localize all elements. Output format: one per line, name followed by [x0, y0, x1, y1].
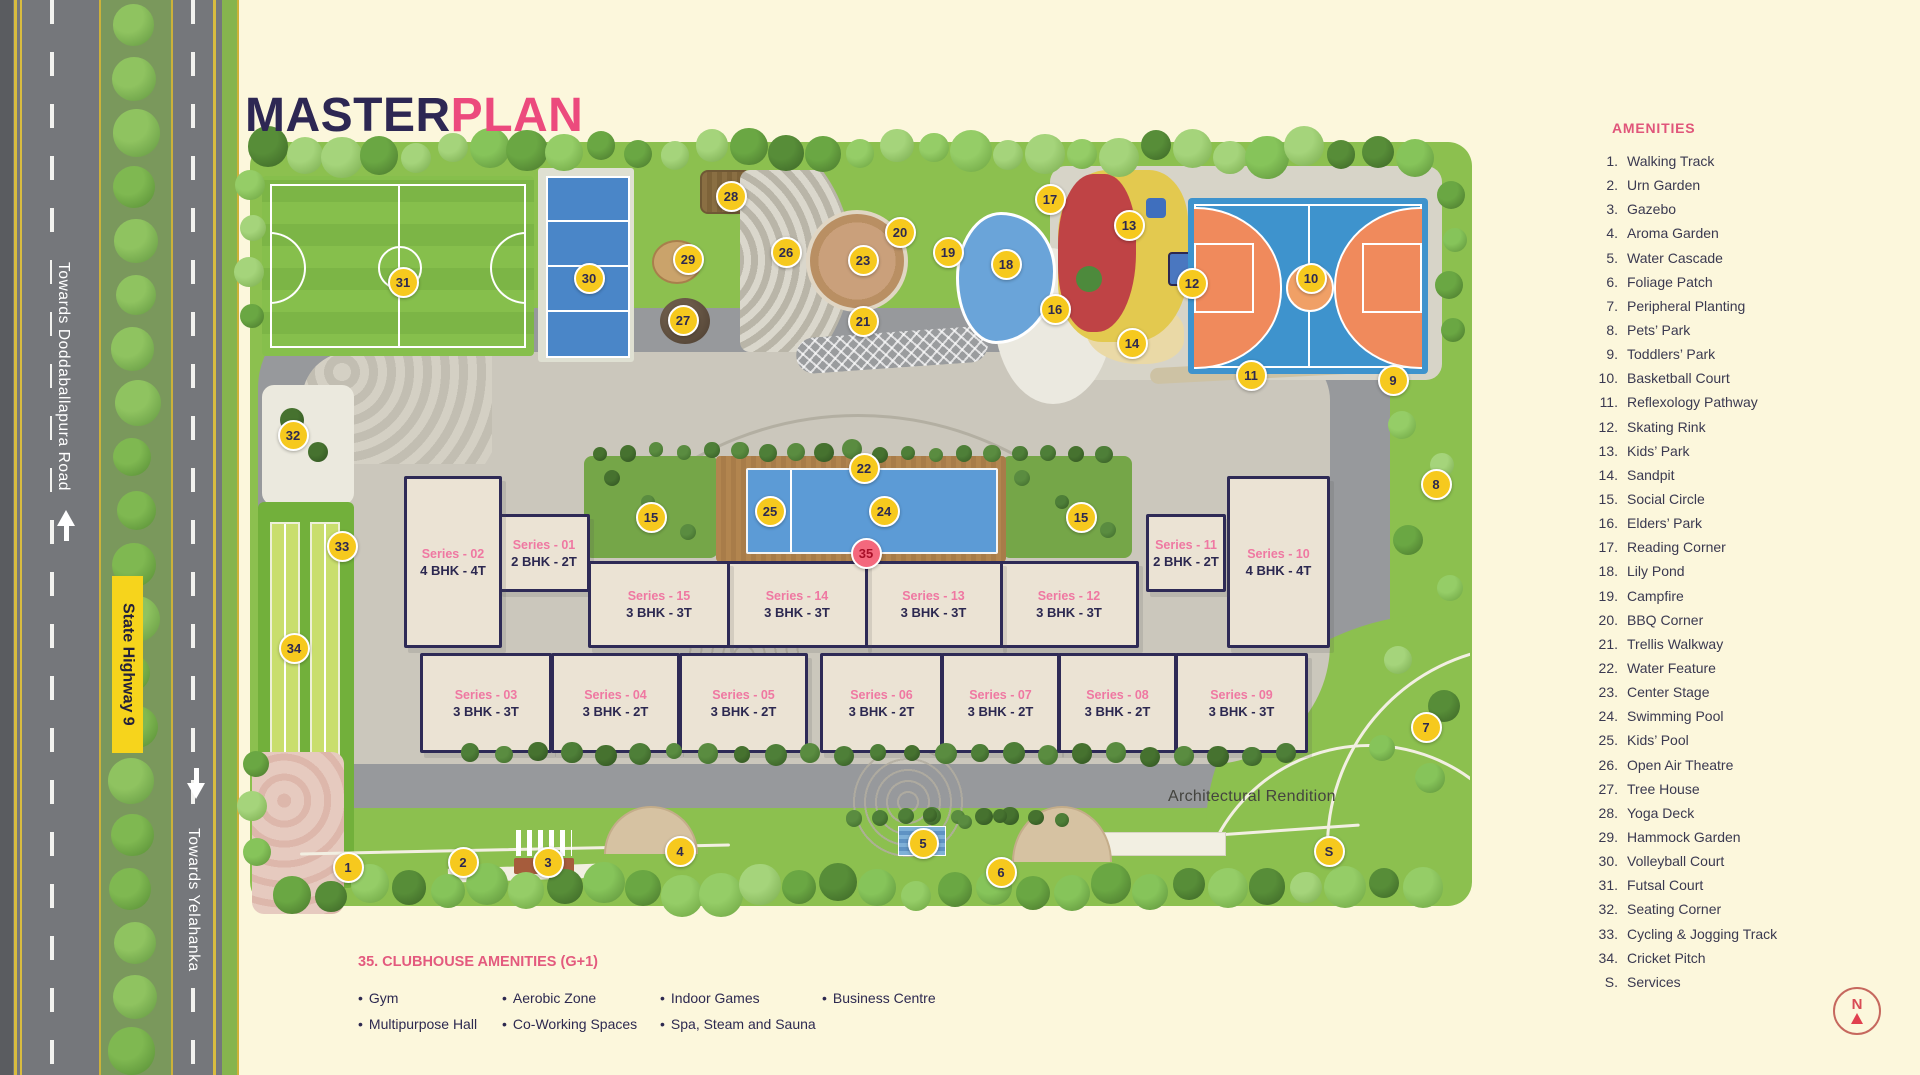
tree-icon	[1038, 745, 1058, 765]
tree-icon	[1132, 874, 1168, 910]
map-marker-34: 34	[279, 633, 310, 664]
map-marker-18: 18	[991, 249, 1022, 280]
tree-icon	[730, 128, 767, 165]
tree-icon	[950, 130, 992, 172]
legend-item: 34.Cricket Pitch	[1588, 946, 1908, 970]
legend-item: 7.Peripheral Planting	[1588, 294, 1908, 318]
tree-icon	[1242, 747, 1262, 767]
tree-icon	[112, 57, 156, 101]
clubhouse-column: •Business Centre	[822, 986, 936, 1012]
residential-tower: Series - 153 BHK - 3T	[588, 561, 730, 648]
tree-icon	[117, 491, 156, 530]
tree-icon	[113, 109, 160, 156]
clubhouse-item: •Spa, Steam and Sauna	[660, 1012, 816, 1038]
tree-icon	[1384, 646, 1412, 674]
residential-tower: Series - 043 BHK - 2T	[551, 653, 680, 753]
legend-item: 19.Campfire	[1588, 584, 1908, 608]
tree-icon	[1435, 271, 1463, 299]
tree-icon	[1140, 747, 1160, 767]
map-marker-14: 14	[1117, 328, 1148, 359]
tree-icon	[880, 129, 913, 162]
tree-icon	[1415, 763, 1445, 793]
tree-icon	[958, 815, 972, 829]
tree-icon	[923, 808, 937, 822]
tree-icon	[1016, 876, 1050, 910]
residential-tower: Series - 133 BHK - 3T	[864, 561, 1003, 648]
tree-icon	[677, 445, 692, 460]
north-letter: N	[1852, 998, 1863, 1012]
tree-icon	[1012, 446, 1027, 461]
tree-icon	[243, 751, 269, 777]
tree-icon	[237, 791, 267, 821]
tree-icon	[625, 870, 660, 905]
tree-icon	[495, 746, 512, 763]
map-marker-15: 15	[1066, 502, 1097, 533]
map-marker-8: 8	[1421, 469, 1452, 500]
clubhouse-item: •Business Centre	[822, 986, 936, 1012]
legend-item: 21.Trellis Walkway	[1588, 632, 1908, 656]
tree-icon	[1284, 126, 1324, 166]
tree-icon	[629, 743, 651, 765]
map-marker-27: 27	[668, 305, 699, 336]
tree-icon	[1174, 746, 1194, 766]
tree-icon	[1245, 136, 1289, 180]
tree-icon	[315, 881, 347, 913]
map-marker-32: 32	[278, 420, 309, 451]
tree-icon	[620, 445, 637, 462]
tree-icon	[401, 143, 431, 173]
clubhouse-item: •Aerobic Zone	[502, 986, 637, 1012]
legend-item: 11.Reflexology Pathway	[1588, 390, 1908, 414]
tree-icon	[1055, 495, 1069, 509]
road-median	[99, 0, 173, 1075]
map-marker-23: 23	[848, 245, 879, 276]
map-marker-20: 20	[885, 217, 916, 248]
tree-icon	[975, 808, 992, 825]
legend-item: 10.Basketball Court	[1588, 366, 1908, 390]
tree-icon	[111, 327, 154, 370]
legend-item: 30.Volleyball Court	[1588, 849, 1908, 873]
tree-icon	[604, 470, 620, 486]
seating-corner	[262, 385, 354, 505]
north-indicator: N	[1833, 987, 1881, 1035]
legend-item: 13.Kids’ Park	[1588, 439, 1908, 463]
tree-icon	[846, 810, 863, 827]
tree-icon	[1028, 810, 1043, 825]
road-yellow-line	[14, 0, 17, 1075]
map-marker-16: 16	[1040, 294, 1071, 325]
tree-icon	[787, 443, 805, 461]
residential-tower: Series - 083 BHK - 2T	[1058, 653, 1177, 753]
tree-icon	[235, 170, 265, 200]
residential-tower: Series - 073 BHK - 2T	[941, 653, 1060, 753]
map-marker-21: 21	[848, 306, 879, 337]
legend-item: 28.Yoga Deck	[1588, 801, 1908, 825]
legend-item: 26.Open Air Theatre	[1588, 753, 1908, 777]
tree-icon	[234, 257, 264, 287]
tree-icon	[1207, 746, 1228, 767]
tree-icon	[108, 758, 154, 804]
map-marker-9: 9	[1378, 365, 1409, 396]
tree-icon	[1106, 742, 1126, 762]
tree-icon	[819, 863, 857, 901]
road-direction-label-south: Towards Yelahanka	[182, 818, 204, 982]
tree-icon	[240, 215, 266, 241]
legend-item: 24.Swimming Pool	[1588, 704, 1908, 728]
legend-item: 22.Water Feature	[1588, 656, 1908, 680]
tree-icon	[704, 442, 719, 457]
tree-icon	[661, 875, 702, 916]
tree-icon	[765, 744, 787, 766]
road-yellow-line	[213, 0, 216, 1075]
tree-icon	[1437, 575, 1463, 601]
tree-icon	[698, 743, 719, 764]
map-marker-25: 25	[755, 496, 786, 527]
tree-icon	[1327, 140, 1355, 168]
tree-icon	[1388, 411, 1416, 439]
map-marker-24: 24	[869, 496, 900, 527]
tree-icon	[108, 1027, 155, 1074]
map-marker-1: 1	[333, 852, 364, 883]
legend-item: 15.Social Circle	[1588, 487, 1908, 511]
map-marker-33: 33	[327, 531, 358, 562]
tree-icon	[1443, 228, 1467, 252]
legend-item: 33.Cycling & Jogging Track	[1588, 922, 1908, 946]
tree-icon	[858, 869, 895, 906]
south-direction-arrow-icon	[187, 768, 205, 799]
tree-icon	[1055, 813, 1069, 827]
tree-icon	[731, 442, 748, 459]
north-arrow-icon	[1851, 1013, 1863, 1024]
legend-item: 2.Urn Garden	[1588, 173, 1908, 197]
residential-tower: Series - 104 BHK - 4T	[1227, 476, 1330, 648]
map-marker-10: 10	[1296, 263, 1327, 294]
tree-icon	[846, 139, 875, 168]
tree-icon	[1369, 735, 1395, 761]
title-plan: PLAN	[451, 89, 584, 142]
residential-tower: Series - 012 BHK - 2T	[498, 514, 590, 592]
residential-tower: Series - 033 BHK - 3T	[420, 653, 552, 753]
legend-item: 29.Hammock Garden	[1588, 825, 1908, 849]
residential-tower: Series - 112 BHK - 2T	[1146, 514, 1226, 592]
legend-item: 4.Aroma Garden	[1588, 221, 1908, 245]
map-marker-30: 30	[574, 263, 605, 294]
map-marker-17: 17	[1035, 184, 1066, 215]
legend-item: 6.Foliage Patch	[1588, 270, 1908, 294]
clubhouse-item: •Co-Working Spaces	[502, 1012, 637, 1038]
tree-icon	[649, 442, 663, 456]
tree-icon	[814, 443, 834, 463]
map-marker-22: 22	[849, 453, 880, 484]
tree-icon	[805, 136, 840, 171]
tree-icon	[870, 744, 886, 760]
tree-icon	[115, 380, 161, 426]
legend-item: 32.Seating Corner	[1588, 897, 1908, 921]
tree-icon	[114, 219, 157, 262]
tree-icon	[308, 442, 328, 462]
tree-icon	[593, 447, 607, 461]
tree-icon	[956, 445, 973, 462]
futsal-court	[262, 176, 534, 356]
map-marker-35: 35	[851, 538, 882, 569]
map-marker-15: 15	[636, 502, 667, 533]
legend-item: 14.Sandpit	[1588, 463, 1908, 487]
tree-icon	[1403, 867, 1444, 908]
map-marker-29: 29	[673, 244, 704, 275]
tree-icon	[734, 746, 751, 763]
legend-item: 5.Water Cascade	[1588, 246, 1908, 270]
play-mound	[1076, 266, 1102, 292]
road-yellow-line	[20, 0, 22, 1075]
map-marker-S: S	[1314, 836, 1345, 867]
residential-tower: Series - 063 BHK - 2T	[820, 653, 943, 753]
tree-icon	[1369, 868, 1399, 898]
tree-icon	[595, 745, 617, 767]
legend-item: 12.Skating Rink	[1588, 415, 1908, 439]
legend-item: 18.Lily Pond	[1588, 559, 1908, 583]
legend-item: 3.Gazebo	[1588, 197, 1908, 221]
tree-icon	[240, 304, 264, 328]
tree-icon	[321, 137, 362, 178]
tree-icon	[993, 809, 1007, 823]
legend-item: 1.Walking Track	[1588, 149, 1908, 173]
masterplan-page: Towards Doddaballapura Road State Highwa…	[0, 0, 1920, 1075]
tree-icon	[561, 742, 583, 764]
legend-header: AMENITIES	[1588, 120, 1908, 136]
map-marker-4: 4	[665, 836, 696, 867]
map-marker-6: 6	[986, 857, 1017, 888]
tree-icon	[528, 742, 547, 761]
clubhouse-item: •Multipurpose Hall	[358, 1012, 477, 1038]
tree-icon	[768, 135, 804, 171]
lane-divider-dashed	[50, 0, 54, 1075]
tree-icon	[938, 872, 972, 906]
clubhouse-column: •Aerobic Zone•Co-Working Spaces	[502, 986, 637, 1037]
tree-icon	[1014, 470, 1030, 486]
tree-icon	[919, 133, 948, 162]
tree-icon	[1290, 872, 1321, 903]
map-marker-19: 19	[933, 237, 964, 268]
tree-icon	[1173, 868, 1204, 899]
tree-icon	[1393, 525, 1423, 555]
legend-item: 16.Elders’ Park	[1588, 511, 1908, 535]
map-marker-28: 28	[716, 181, 747, 212]
tree-icon	[971, 744, 989, 762]
legend-list: 1.Walking Track2.Urn Garden3.Gazebo4.Aro…	[1588, 149, 1908, 994]
tree-icon	[901, 881, 931, 911]
tree-icon	[113, 4, 154, 45]
play-equipment	[1146, 198, 1166, 218]
tree-icon	[699, 873, 743, 917]
tree-icon	[392, 870, 426, 904]
legend-item: 23.Center Stage	[1588, 680, 1908, 704]
legend-item: 17.Reading Corner	[1588, 535, 1908, 559]
residential-tower: Series - 093 BHK - 3T	[1175, 653, 1308, 753]
map-marker-26: 26	[771, 237, 802, 268]
tree-icon	[113, 975, 157, 1019]
amenities-legend: AMENITIES 1.Walking Track2.Urn Garden3.G…	[1588, 120, 1908, 994]
kids-pool-divider	[790, 470, 792, 552]
page-title: MASTERPLAN	[245, 88, 583, 143]
legend-item: 20.BBQ Corner	[1588, 608, 1908, 632]
tree-icon	[1095, 446, 1112, 463]
tree-icon	[1025, 134, 1064, 173]
tree-icon	[1091, 863, 1131, 903]
tree-icon	[1441, 318, 1465, 342]
tree-icon	[243, 838, 271, 866]
tree-icon	[116, 275, 156, 315]
map-marker-13: 13	[1114, 210, 1145, 241]
map-marker-11: 11	[1236, 360, 1267, 391]
residential-tower: Series - 123 BHK - 3T	[999, 561, 1139, 648]
tree-icon	[113, 166, 155, 208]
map-marker-5: 5	[908, 828, 939, 859]
tree-icon	[1213, 141, 1246, 174]
tree-icon	[583, 862, 625, 904]
tree-icon	[508, 872, 545, 909]
roadside-verge	[222, 0, 239, 1075]
map-marker-3: 3	[533, 847, 564, 878]
clubhouse-column: •Indoor Games•Spa, Steam and Sauna	[660, 986, 816, 1037]
tree-icon	[739, 864, 780, 905]
map-marker-2: 2	[448, 847, 479, 878]
architectural-rendition-note: Architectural Rendition	[1168, 788, 1336, 806]
tree-icon	[273, 876, 310, 913]
clubhouse-heading: 35. CLUBHOUSE AMENITIES (G+1)	[358, 954, 598, 970]
residential-tower: Series - 053 BHK - 2T	[679, 653, 808, 753]
tree-icon	[1003, 742, 1025, 764]
map-marker-12: 12	[1177, 268, 1208, 299]
map-marker-31: 31	[388, 267, 419, 298]
residential-tower: Series - 143 BHK - 3T	[726, 561, 868, 648]
tree-icon	[1437, 181, 1465, 209]
map-marker-7: 7	[1411, 712, 1442, 743]
road-direction-label-north: Towards Doddaballapura Road	[52, 252, 74, 501]
clubhouse-column: •Gym•Multipurpose Hall	[358, 986, 477, 1037]
residential-tower: Series - 024 BHK - 4T	[404, 476, 502, 648]
tree-icon	[1362, 136, 1394, 168]
legend-item: 9.Toddlers’ Park	[1588, 342, 1908, 366]
tree-icon	[431, 874, 465, 908]
tree-icon	[1100, 522, 1116, 538]
tree-icon	[680, 524, 696, 540]
clubhouse-item: •Gym	[358, 986, 477, 1012]
title-master: MASTER	[245, 89, 451, 142]
legend-item: 25.Kids’ Pool	[1588, 728, 1908, 752]
tree-icon	[661, 141, 690, 170]
tree-icon	[1249, 868, 1286, 905]
tree-icon	[935, 743, 956, 764]
tree-icon	[111, 814, 154, 857]
legend-item: 31.Futsal Court	[1588, 873, 1908, 897]
legend-item: 27.Tree House	[1588, 777, 1908, 801]
north-direction-arrow-icon	[57, 510, 75, 541]
legend-item: 8.Pets’ Park	[1588, 318, 1908, 342]
tree-icon	[1276, 743, 1296, 763]
state-highway-sign: State Highway 9	[112, 576, 143, 753]
road-shoulder	[0, 0, 13, 1075]
clubhouse-item: •Indoor Games	[660, 986, 816, 1012]
tree-icon	[1099, 138, 1139, 178]
tree-icon	[759, 444, 777, 462]
tree-icon	[461, 743, 479, 761]
tree-icon	[1208, 868, 1248, 908]
tree-icon	[782, 870, 816, 904]
